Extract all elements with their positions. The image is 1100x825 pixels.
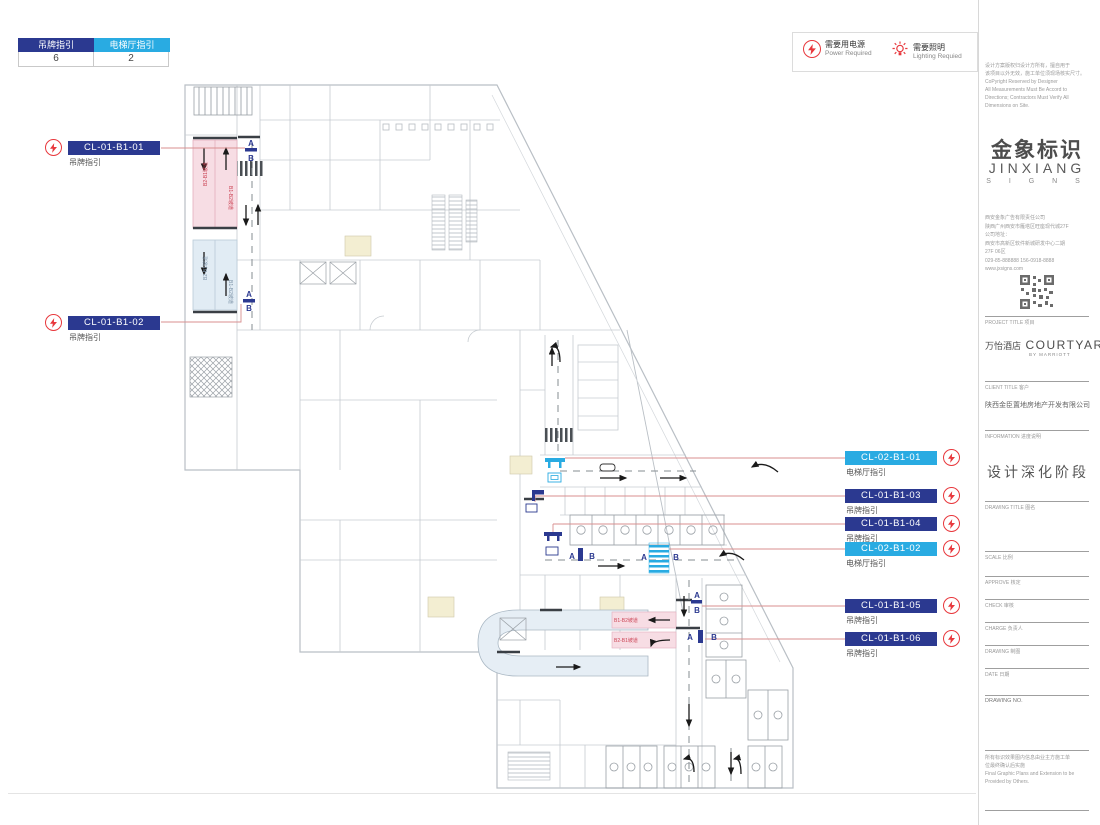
sign-type: 吊牌指引 [846,615,878,626]
sign-type: 吊牌指引 [69,332,101,343]
power-required-icon [45,314,62,331]
sign-code: CL-02-B1-02 [845,542,937,556]
label-cl-01-b1-01: CL-01-B1-01 吊牌指引 [68,141,160,155]
power-required-icon [943,597,960,614]
sign-type: 吊牌指引 [846,505,878,516]
sign-type: 电梯厅指引 [846,558,886,569]
floor-plan-svg: A B A B A B A B A B A B [0,0,1100,825]
svg-text:B1-B2坡道: B1-B2坡道 [227,280,234,304]
copyright-line: All Measurements Must Be Accord to [985,86,1067,94]
power-required-icon [943,540,960,557]
legend-lighting-zh: 需要照明 [913,43,962,53]
divider [985,381,1089,382]
sign-code: CL-01-B1-04 [845,517,937,531]
svg-text:A: A [641,553,647,562]
divider [985,645,1089,646]
company-info-line: 西安市高新区软件新城研发中心二期 [985,240,1065,248]
divider [985,430,1089,431]
hanging-sign-header: 吊牌指引 [18,38,94,52]
project-name-en: COURTYARD [1025,338,1100,352]
sign-count-table: 吊牌指引 电梯厅指引 6 2 [18,38,170,67]
sheet-bottom-border [8,793,976,794]
footer-line: 位最终确认后实施 [985,762,1025,770]
divider [985,576,1089,577]
drawing-label: DRAWING 制图 [985,648,1020,655]
information-label: INFORMATION 进度说明 [985,433,1041,440]
company-info-line: 陕西广州西安市雁塔区旺座现代城27F [985,223,1069,231]
interior-walls [185,85,746,788]
signage-plan-sheet: { "summary_table": { "col1_label": "吊牌指引… [0,0,1100,825]
power-required-icon [45,139,62,156]
column-markers [383,124,493,130]
check-label: CHECK 审核 [985,602,1014,609]
scale-label: SCALE 比例 [985,554,1013,561]
divider [985,695,1089,696]
title-block: 设计方案版权归设计方所有，擅自用于 该项目以外无效，施工单位须现场核实尺寸。 C… [985,0,1091,825]
svg-text:B1-B2坡道: B1-B2坡道 [227,186,234,210]
company-logo-sub: S I G N S [985,178,1089,185]
svg-text:A: A [248,139,254,148]
hanging-sign-count: 6 [18,52,94,67]
divider [985,599,1089,600]
label-cl-02-b1-02: CL-02-B1-02 电梯厅指引 [845,542,937,556]
footer-line: Final Graphic Plans and Extension to be [985,770,1074,778]
svg-text:A: A [694,591,700,600]
client-name: 陕西金臣置地房地产开发有限公司 [985,400,1090,410]
copyright-line: CoPyright Reserved by Designer [985,78,1058,86]
power-required-icon [943,630,960,647]
svg-text:B: B [673,553,679,562]
legend-power-zh: 需要用电源 [825,40,872,50]
client-title-label: CLIENT TITLE 客户 [985,384,1029,391]
footer-line: 所有标识效果图内信息由业主方施工单 [985,754,1070,762]
copyright-line: Directions; Contractors Must Verify All [985,94,1069,102]
elevator-sign-count: 2 [94,52,169,67]
legend-power-en: Power Required [825,50,872,58]
date-label: DATE 日期 [985,671,1009,678]
sign-type: 吊牌指引 [846,648,878,659]
company-info-line: www.jxsigns.com [985,265,1023,273]
svg-text:B: B [694,606,700,615]
legend-lighting-en: Lighting Requied [913,53,962,61]
divider [985,750,1089,751]
company-info-line: 公司地址： [985,231,1010,239]
footer-line: Provided by Others. [985,778,1029,786]
company-info-line: 029-85-888888 156-0918-8888 [985,257,1054,265]
svg-text:A: A [687,633,693,642]
project-name-zh: 万怡酒店 [985,341,1021,351]
approve-label: APPROVE 核定 [985,579,1021,586]
svg-text:B: B [246,304,252,313]
divider [985,501,1089,502]
sign-type: 吊牌指引 [69,157,101,168]
label-cl-01-b1-03: CL-01-B1-03 吊牌指引 [845,489,937,503]
qr-code [1019,274,1055,310]
label-cl-01-b1-04: CL-01-B1-04 吊牌指引 [845,517,937,531]
sign-markers: A B A B A B A B A B A B [243,139,717,643]
label-cl-01-b1-05: CL-01-B1-05 吊牌指引 [845,599,937,613]
design-phase: 设计深化阶段 [987,462,1089,482]
company-logo-en: JINXIANG [985,160,1089,176]
copyright-line: 设计方案版权归设计方所有，擅自用于 [985,62,1070,70]
legend-box: 需要用电源 Power Required 需要照明 Lighting Requi… [792,32,978,72]
svg-text:B2-B1坡道: B2-B1坡道 [614,637,638,644]
sign-code: CL-01-B1-02 [68,316,160,330]
sign-code: CL-01-B1-05 [845,599,937,613]
power-required-icon [943,487,960,504]
legend-lighting: 需要照明 Lighting Requied [891,40,962,63]
divider [985,810,1089,811]
drive-lanes [252,142,735,786]
company-info-line: 西安金象广告有限责任公司 [985,214,1045,222]
sign-code: CL-01-B1-06 [845,632,937,646]
direction-arrows [204,148,778,774]
lighting-required-icon [891,40,909,63]
svg-text:B: B [711,633,717,642]
sign-code: CL-01-B1-03 [845,489,937,503]
svg-text:B1-B2坡道: B1-B2坡道 [614,617,638,624]
svg-text:B2-B1坡道: B2-B1坡道 [202,256,209,280]
divider [985,316,1089,317]
label-cl-01-b1-06: CL-01-B1-06 吊牌指引 [845,632,937,646]
svg-text:B: B [589,552,595,561]
power-required-icon [943,515,960,532]
svg-text:B: B [248,154,254,163]
parking-stalls [570,515,788,788]
elevator-sign-header: 电梯厅指引 [94,38,170,52]
leader-lines [161,148,845,639]
divider [985,668,1089,669]
svg-text:B2-B1坡道: B2-B1坡道 [202,162,209,186]
titleblock-divider [978,0,979,825]
company-info-line: 27F 06区 [985,248,1006,256]
sign-type: 电梯厅指引 [846,467,886,478]
drawing-title-label: DRAWING TITLE 图名 [985,504,1035,511]
power-required-icon [803,40,821,58]
drawing-no-label: DRAWING NO. [985,698,1023,704]
project-brand: BY MARRIOTT [1029,352,1071,357]
label-cl-01-b1-02: CL-01-B1-02 吊牌指引 [68,316,160,330]
charge-label: CHARGE 负责人 [985,625,1023,632]
legend-power: 需要用电源 Power Required [803,40,872,58]
svg-text:A: A [569,552,575,561]
plan-fills [190,87,676,780]
copyright-line: Dimensions on Site. [985,102,1029,110]
copyright-line: 该项目以外无效，施工单位须现场核实尺寸。 [985,70,1085,78]
sign-code: CL-02-B1-01 [845,451,937,465]
project-title-label: PROJECT TITLE 项目 [985,319,1035,326]
power-required-icon [943,449,960,466]
label-cl-02-b1-01: CL-02-B1-01 电梯厅指引 [845,451,937,465]
svg-text:A: A [246,290,252,299]
divider [985,551,1089,552]
divider [985,622,1089,623]
sign-code: CL-01-B1-01 [68,141,160,155]
